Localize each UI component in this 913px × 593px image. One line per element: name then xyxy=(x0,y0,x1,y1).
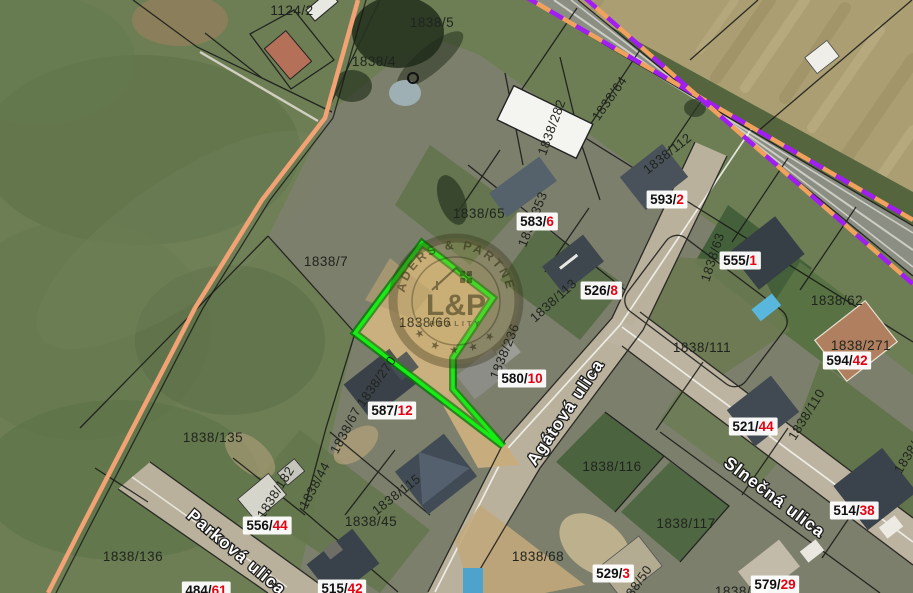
svg-text:515/42: 515/42 xyxy=(321,581,362,593)
map-canvas[interactable]: 1124/21838/51838/41838/71838/651838/6618… xyxy=(0,0,913,593)
parcel-label: 1838/111 xyxy=(673,340,731,355)
house-number-label: 484/61 xyxy=(182,582,231,593)
pool xyxy=(463,568,483,593)
parcel-label: 1838/117 xyxy=(656,516,715,531)
pond xyxy=(389,80,421,106)
parcel-label: 1838/45 xyxy=(345,514,397,529)
house-number-label: 521/44 xyxy=(729,418,778,436)
parcel-label: 1838/271 xyxy=(831,338,891,353)
house-number-label: 556/44 xyxy=(243,517,292,535)
svg-text:555/1: 555/1 xyxy=(723,253,757,268)
house-number-label: 555/1 xyxy=(720,252,761,270)
house-number-label: 587/12 xyxy=(368,402,416,420)
svg-text:556/44: 556/44 xyxy=(246,518,288,533)
parcel-label: 1838/135 xyxy=(183,430,243,445)
parcel-label: 1838/4 xyxy=(352,54,396,69)
parcel-label: 1838/136 xyxy=(103,549,163,564)
house-number-label: 583/6 xyxy=(517,213,558,231)
parcel-label: 1838/62 xyxy=(811,293,863,308)
house-number-label: 529/3 xyxy=(593,565,634,583)
svg-text:526/8: 526/8 xyxy=(584,283,618,298)
watermark-reality: REALITY xyxy=(429,319,482,328)
parcel-label: 1124/2 xyxy=(270,3,313,18)
parcel-label: 1838/68 xyxy=(512,549,564,564)
svg-text:587/12: 587/12 xyxy=(371,403,412,418)
parcel-label: 1838/65 xyxy=(453,206,505,221)
house-number-label: 579/29 xyxy=(751,576,799,593)
svg-text:579/29: 579/29 xyxy=(754,577,795,592)
svg-text:514/38: 514/38 xyxy=(833,503,875,518)
parcel-label: 1838/ xyxy=(715,584,751,593)
satellite-map[interactable]: 1124/21838/51838/41838/71838/651838/6618… xyxy=(0,0,913,593)
parcel-label: 1838/7 xyxy=(304,254,348,269)
house-number-label: 594/42 xyxy=(823,352,871,370)
house-number-label: 514/38 xyxy=(830,502,879,520)
svg-text:594/42: 594/42 xyxy=(826,353,867,368)
svg-text:484/61: 484/61 xyxy=(185,583,227,593)
svg-text:583/6: 583/6 xyxy=(520,214,554,229)
house-number-label: 515/42 xyxy=(318,580,366,593)
house-number-label: 580/10 xyxy=(498,370,546,388)
parcel-label: 1838/116 xyxy=(582,459,641,474)
svg-text:521/44: 521/44 xyxy=(732,419,774,434)
house-number-label: 526/8 xyxy=(581,282,622,300)
parcel-label: 1838/5 xyxy=(410,15,454,30)
svg-text:580/10: 580/10 xyxy=(501,371,542,386)
svg-text:529/3: 529/3 xyxy=(596,566,630,581)
house-number-label: 593/2 xyxy=(647,191,688,209)
watermark-lp: L&P xyxy=(426,289,486,322)
svg-text:593/2: 593/2 xyxy=(650,192,684,207)
